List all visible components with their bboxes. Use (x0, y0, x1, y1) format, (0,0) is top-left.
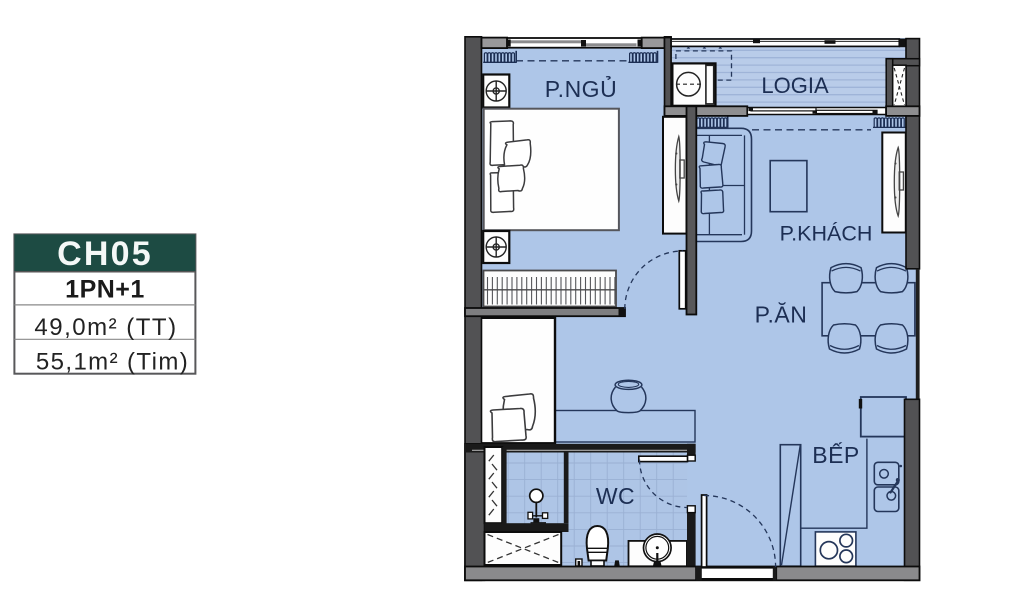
svg-text:P.ĂN: P.ĂN (755, 302, 808, 328)
svg-text:49,0m² (TT): 49,0m² (TT) (34, 314, 177, 341)
svg-text:P.NGỦ: P.NGỦ (545, 74, 617, 102)
svg-text:BẾP: BẾP (812, 441, 860, 468)
svg-text:CH05: CH05 (57, 235, 153, 273)
svg-text:1PN+1: 1PN+1 (65, 276, 145, 304)
svg-text:LOGIA: LOGIA (761, 73, 829, 98)
svg-text:WC: WC (596, 483, 635, 509)
svg-text:55,1m² (Tim): 55,1m² (Tim) (36, 348, 189, 375)
svg-text:P.KHÁCH: P.KHÁCH (780, 221, 873, 246)
